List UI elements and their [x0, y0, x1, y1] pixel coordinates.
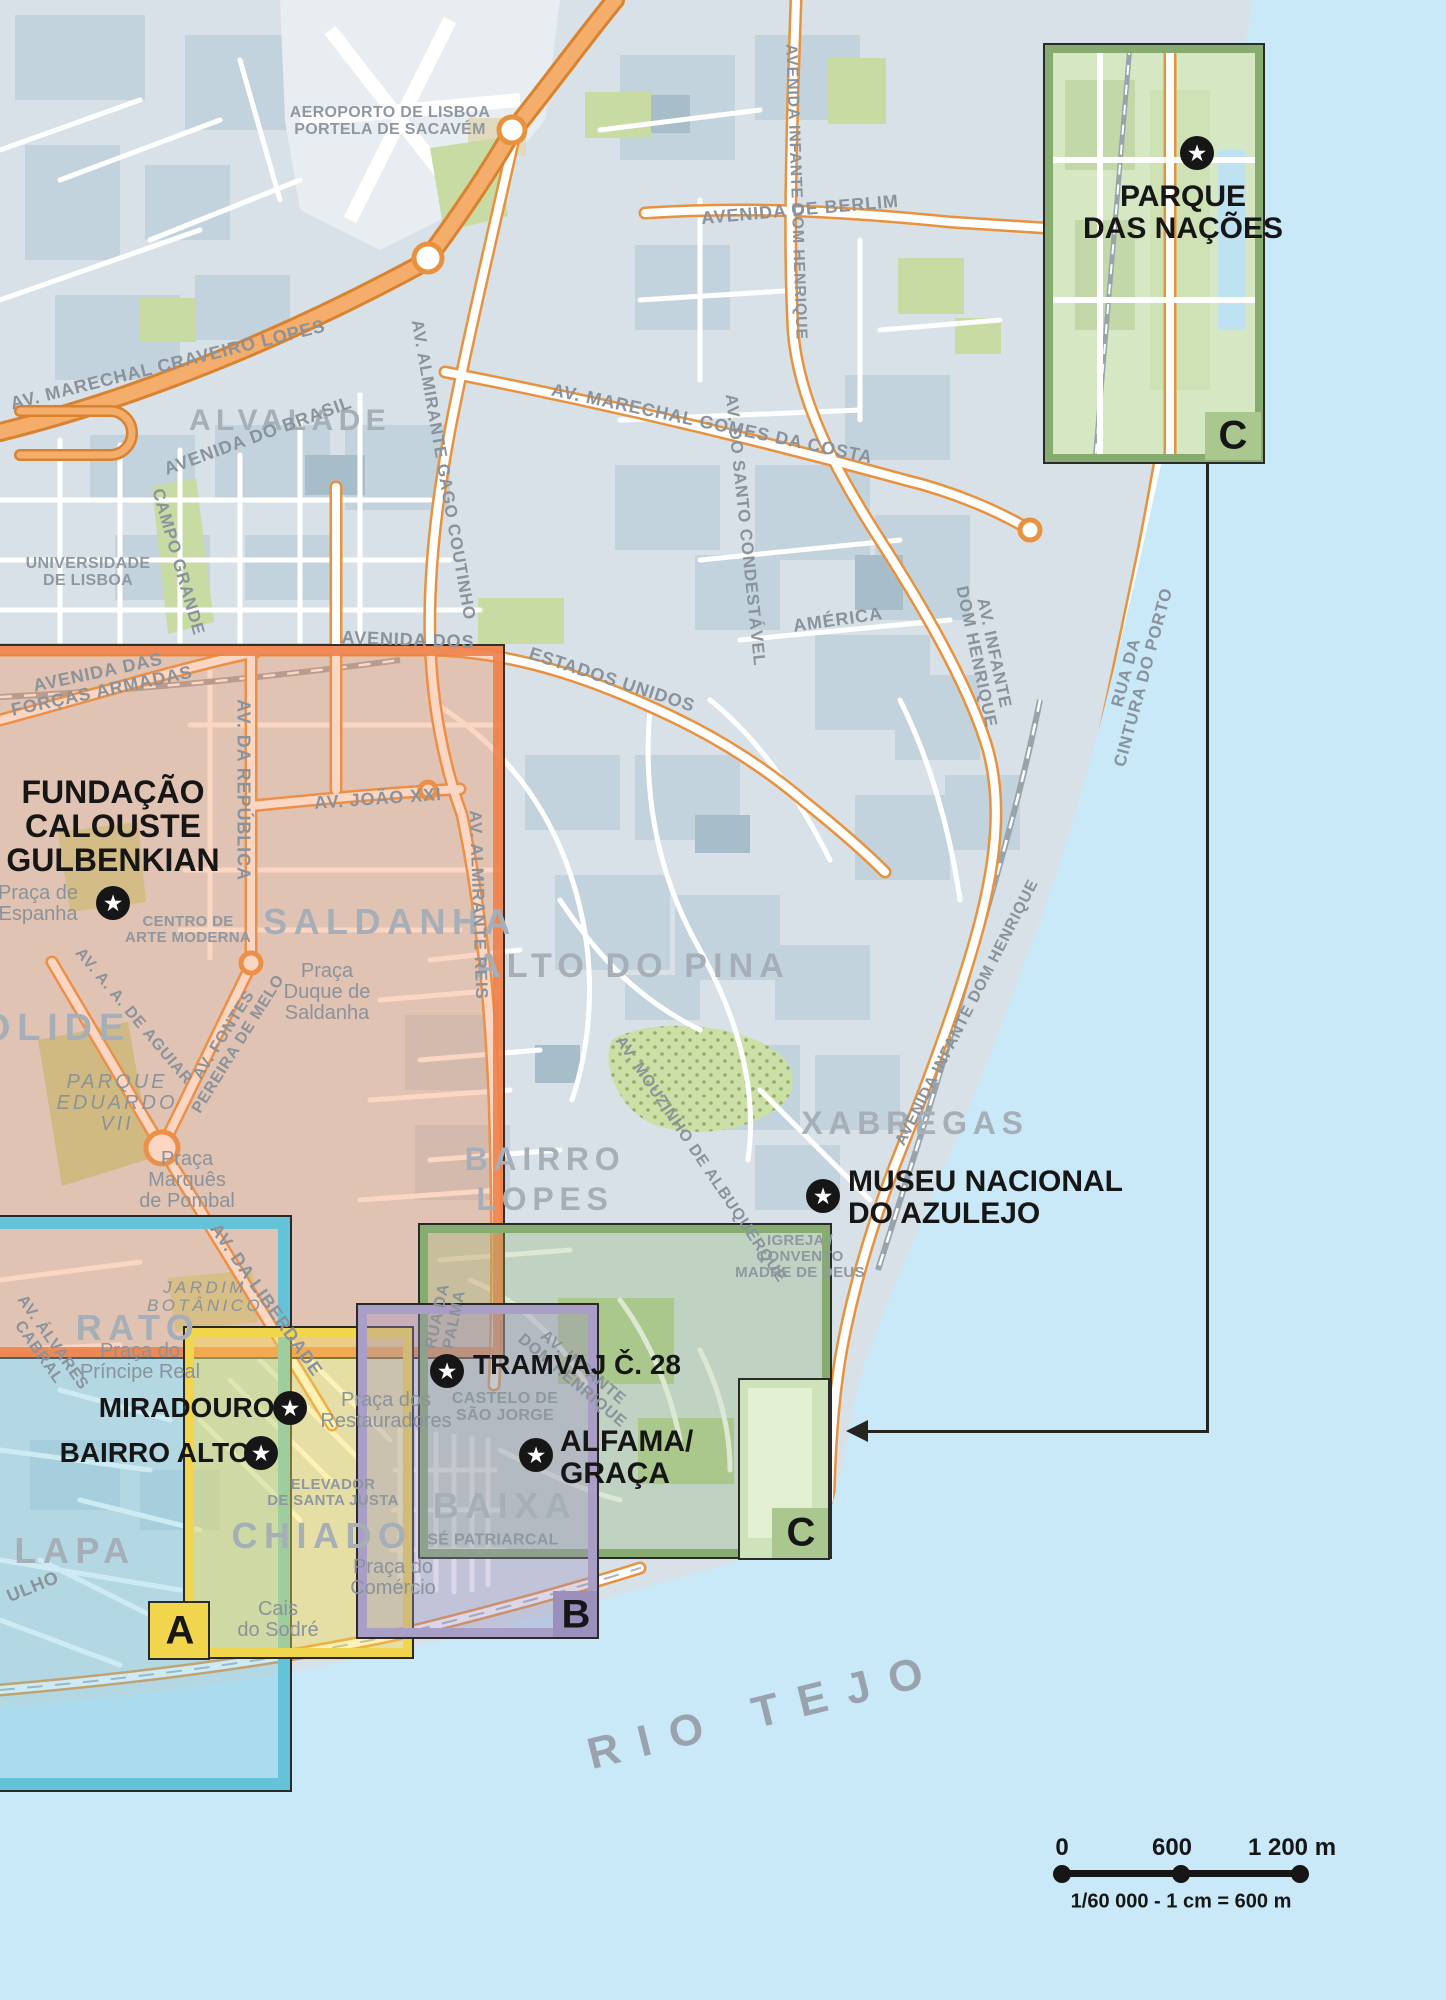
- restauradores-line2: Restauradores: [320, 1411, 451, 1432]
- elevador-line1: ELEVADOR: [267, 1477, 398, 1493]
- region-label-bairro-lopes-1: BAIRRO: [465, 1143, 626, 1177]
- duque-line2: Duque de: [284, 982, 371, 1003]
- place-label-centro-arte: CENTRO DE ARTE MODERNA: [125, 914, 251, 946]
- comercio-line1: Praça do: [350, 1557, 436, 1578]
- cais-line2: do Sodré: [237, 1620, 318, 1641]
- poi-label-bairro-alto: BAIRRO ALTO: [60, 1438, 251, 1468]
- place-label-se-patriarcal: SÉ PATRIARCAL: [427, 1533, 559, 1550]
- place-label-jardim-botanico: JARDIM BOTÂNICO: [147, 1279, 263, 1315]
- scale-bar-dot-mid: [1172, 1865, 1190, 1883]
- poi-label-gulbenkian: FUNDAÇÃO CALOUSTE GULBENKIAN: [6, 776, 219, 878]
- alfama-line1: ALFAMA/: [560, 1426, 693, 1458]
- inset-frame-parque-nacoes: [1045, 45, 1263, 462]
- aeroporto-line1: AEROPORTO DE LISBOA: [290, 105, 490, 122]
- region-label-lapa: LAPA: [14, 1532, 135, 1570]
- inset-connector-arrow-icon: [846, 1420, 868, 1442]
- aeroporto-line2: PORTELA DE SACAVÉM: [290, 122, 490, 139]
- poi-star-azulejo-icon: [806, 1179, 840, 1213]
- jardim-line1: JARDIM: [147, 1279, 263, 1297]
- region-label-alto-do-pina: ALTO DO PINA: [476, 948, 790, 984]
- poi-star-alfama-icon: [519, 1438, 553, 1472]
- principe-line1: Praça do: [80, 1341, 200, 1362]
- scale-bar-dot-right: [1291, 1865, 1309, 1883]
- street-label-republica: AV. DA REPÚBLICA: [233, 699, 252, 881]
- section-letter-b: B: [562, 1593, 591, 1638]
- place-label-espanha: Praça de Espanha: [0, 883, 78, 925]
- scale-bar-caption: 1/60 000 - 1 cm = 600 m: [1071, 1891, 1292, 1914]
- gulbenkian-line3: GULBENKIAN: [6, 844, 219, 878]
- eduardo-line1: PARQUE: [56, 1072, 177, 1093]
- igreja-line1: IGREJA /: [735, 1233, 865, 1249]
- poi-label-alfama: ALFAMA/ GRAÇA: [560, 1426, 693, 1490]
- parque-line1: PARQUE: [1083, 181, 1283, 213]
- eduardo-line2: EDUARDO: [56, 1093, 177, 1114]
- centro-line2: ARTE MODERNA: [125, 930, 251, 946]
- jardim-line2: BOTÂNICO: [147, 1297, 263, 1315]
- espanha-line1: Praça de: [0, 883, 78, 904]
- azulejo-line2: DO AZULEJO: [848, 1198, 1123, 1230]
- igreja-line3: MADRE DE DEUS: [735, 1265, 865, 1281]
- place-label-principe-real: Praça do Príncipe Real: [80, 1341, 200, 1383]
- place-label-aeroporto: AEROPORTO DE LISBOA PORTELA DE SACAVÉM: [290, 105, 490, 139]
- universidade-line1: UNIVERSIDADE: [26, 556, 151, 573]
- alfama-line2: GRAÇA: [560, 1458, 693, 1490]
- scale-bar-dot-left: [1053, 1865, 1071, 1883]
- scale-bar-zero: 0: [1055, 1834, 1068, 1862]
- gulbenkian-line1: FUNDAÇÃO: [6, 776, 219, 810]
- place-label-castelo: CASTELO DE SÃO JORGE: [452, 1391, 558, 1425]
- region-label-campolide: OLIDE: [0, 1008, 131, 1048]
- elevador-line2: DE SANTA JUSTA: [267, 1493, 398, 1509]
- inset-connector-vertical: [1206, 462, 1209, 1431]
- universidade-line2: DE LISBOA: [26, 573, 151, 590]
- region-label-chiado: CHIADO: [232, 1517, 413, 1555]
- poi-label-azulejo: MUSEU NACIONAL DO AZULEJO: [848, 1166, 1123, 1230]
- scale-bar-end: 1 200 m: [1248, 1834, 1336, 1862]
- eduardo-line3: VII: [56, 1115, 177, 1136]
- principe-line2: Príncipe Real: [80, 1362, 200, 1383]
- marques-line3: de Pombal: [139, 1192, 235, 1213]
- gulbenkian-line2: CALOUSTE: [6, 810, 219, 844]
- inset-connector-horizontal: [852, 1430, 1209, 1433]
- section-letter-c-small: C: [787, 1511, 816, 1556]
- poi-star-gulbenkian-icon: [96, 886, 130, 920]
- centro-line1: CENTRO DE: [125, 914, 251, 930]
- place-label-comercio: Praça do Comércio: [350, 1557, 436, 1599]
- comercio-line2: Comércio: [350, 1578, 436, 1599]
- scale-bar-mid: 600: [1152, 1834, 1192, 1862]
- igreja-line2: CONVENTO: [735, 1249, 865, 1265]
- azulejo-line1: MUSEU NACIONAL: [848, 1166, 1123, 1198]
- region-label-baixa: BAIXA: [433, 1487, 577, 1525]
- place-label-parque-eduardo: PARQUE EDUARDO VII: [56, 1072, 177, 1136]
- poi-label-parque-nacoes: PARQUE DAS NAÇÕES: [1083, 181, 1283, 245]
- duque-line1: Praça: [284, 961, 371, 982]
- poi-star-tramvaj-icon: [430, 1354, 464, 1388]
- lisbon-map-page: A B C C ALVALADE SALDANHA ALTO DO PINA X…: [0, 0, 1446, 2000]
- place-label-restauradores: Praça dos Restauradores: [320, 1390, 451, 1432]
- poi-label-tramvaj: TRAMVAJ Č. 28: [473, 1350, 681, 1380]
- castelo-line1: CASTELO DE: [452, 1391, 558, 1408]
- place-label-cais-sodre: Cais do Sodré: [237, 1599, 318, 1641]
- duque-line3: Saldanha: [284, 1004, 371, 1025]
- restauradores-line1: Praça dos: [320, 1390, 451, 1411]
- region-label-bairro-lopes-2: LOPES: [476, 1183, 613, 1217]
- section-letter-a: A: [166, 1609, 195, 1654]
- place-label-marques-pombal: Praça Marquês de Pombal: [139, 1149, 235, 1213]
- section-letter-c-inset: C: [1219, 414, 1248, 459]
- cais-line1: Cais: [237, 1599, 318, 1620]
- castelo-line2: SÃO JORGE: [452, 1408, 558, 1425]
- place-label-universidade: UNIVERSIDADE DE LISBOA: [26, 556, 151, 590]
- place-label-elevador: ELEVADOR DE SANTA JUSTA: [267, 1477, 398, 1509]
- marques-line1: Praça: [139, 1149, 235, 1170]
- place-label-duque-saldanha: Praça Duque de Saldanha: [284, 961, 371, 1025]
- poi-star-miradouros-icon: [273, 1391, 307, 1425]
- poi-star-parque-nacoes-icon: [1180, 136, 1214, 170]
- poi-star-bairro-alto-icon: [244, 1436, 278, 1470]
- parque-line2: DAS NAÇÕES: [1083, 213, 1283, 245]
- place-label-igreja-madre-deus: IGREJA / CONVENTO MADRE DE DEUS: [735, 1233, 865, 1281]
- espanha-line2: Espanha: [0, 904, 78, 925]
- poi-label-miradouros: MIRADOUROS: [99, 1393, 293, 1423]
- marques-line2: Marquês: [139, 1170, 235, 1191]
